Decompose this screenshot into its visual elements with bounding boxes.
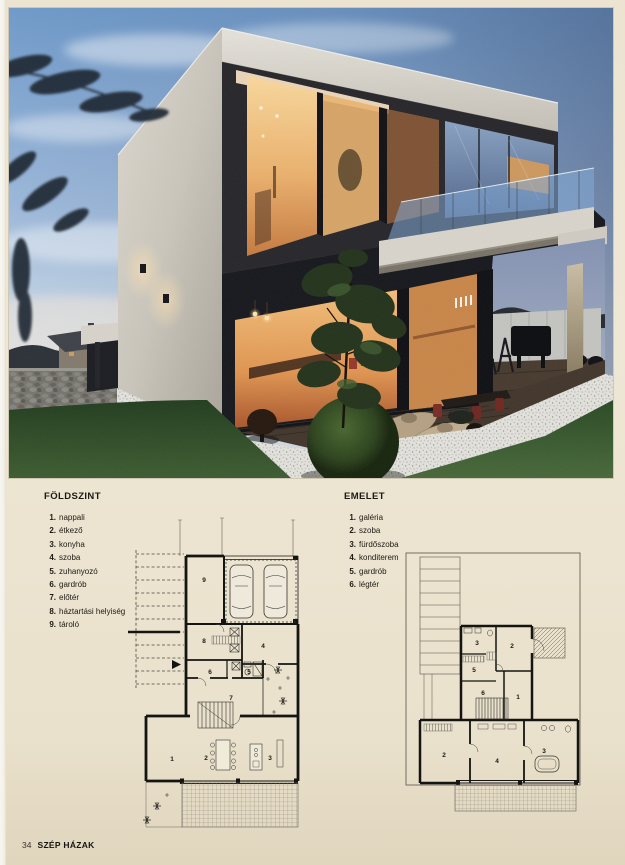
car bbox=[230, 565, 253, 618]
svg-text:6: 6 bbox=[481, 690, 485, 697]
svg-text:1: 1 bbox=[170, 756, 174, 763]
ground-floor-legend-title: FÖLDSZINT bbox=[44, 491, 125, 502]
car bbox=[264, 565, 287, 618]
svg-text:3: 3 bbox=[542, 748, 546, 755]
page-footer: 34SZÉP HÁZAK bbox=[22, 840, 95, 850]
roof-outline bbox=[406, 553, 580, 785]
stairs-upper bbox=[476, 698, 508, 719]
legend-item: 1.galéria bbox=[344, 511, 399, 524]
svg-text:2: 2 bbox=[442, 752, 446, 759]
legend-item: 3.fürdőszoba bbox=[344, 538, 399, 551]
legend-item: 6.légtér bbox=[344, 578, 399, 591]
svg-text:8: 8 bbox=[202, 638, 206, 645]
legend-item: 2.étkező bbox=[44, 524, 125, 537]
svg-text:5: 5 bbox=[247, 669, 251, 676]
section-markers bbox=[178, 518, 295, 556]
deck-dashed-lines bbox=[136, 550, 184, 688]
svg-text:4: 4 bbox=[495, 758, 499, 765]
stairs bbox=[198, 702, 233, 728]
legend-item: 9.tároló bbox=[44, 618, 125, 631]
svg-text:5: 5 bbox=[472, 667, 476, 674]
svg-text:3: 3 bbox=[268, 755, 272, 762]
svg-text:6: 6 bbox=[208, 669, 212, 676]
svg-text:2: 2 bbox=[510, 643, 514, 650]
entrance-arrow bbox=[172, 660, 181, 669]
upper-floor-legend-title: EMELET bbox=[344, 491, 399, 502]
legend-item: 5.gardrób bbox=[344, 565, 399, 578]
magazine-title: SZÉP HÁZAK bbox=[37, 840, 94, 850]
roof-terrace bbox=[534, 628, 565, 658]
legend-item: 3.konyha bbox=[44, 538, 125, 551]
carport-plan bbox=[226, 560, 296, 622]
svg-text:9: 9 bbox=[202, 577, 206, 584]
legend-item: 1.nappali bbox=[44, 511, 125, 524]
house-photo bbox=[9, 8, 613, 478]
legend-item: 6.gardrób bbox=[44, 578, 125, 591]
legend-item: 4.szoba bbox=[44, 551, 125, 564]
page-left-edge bbox=[0, 0, 6, 865]
page-number: 34 bbox=[22, 840, 31, 850]
photo-grain bbox=[9, 8, 613, 478]
svg-text:4: 4 bbox=[261, 643, 265, 650]
svg-text:3: 3 bbox=[475, 640, 479, 647]
legend-item: 7.előtér bbox=[44, 591, 125, 604]
fixtures bbox=[198, 624, 283, 770]
upper-floor-legend: EMELET 1.galéria 2.szoba 3.fürdőszoba 4.… bbox=[344, 491, 399, 591]
house-photo-art bbox=[9, 8, 613, 478]
legend-item: 8.háztartási helyiség bbox=[44, 605, 125, 618]
legend-item: 2.szoba bbox=[344, 524, 399, 537]
upper-floor-plan: 1 2 2 3 3 4 5 6 bbox=[398, 546, 588, 818]
magazine-page: FÖLDSZINT 1.nappali 2.étkező 3.konyha 4.… bbox=[0, 0, 625, 865]
balcony-plan bbox=[455, 785, 576, 811]
svg-text:1: 1 bbox=[516, 694, 520, 701]
ground-floor-plan: 1 2 3 4 5 6 7 8 9 bbox=[128, 516, 310, 838]
svg-text:7: 7 bbox=[229, 695, 233, 702]
svg-text:2: 2 bbox=[204, 755, 208, 762]
ground-floor-legend: FÖLDSZINT 1.nappali 2.étkező 3.konyha 4.… bbox=[44, 491, 125, 632]
terrace bbox=[182, 783, 298, 827]
bathtub bbox=[535, 756, 559, 772]
roof-slats bbox=[420, 557, 460, 720]
legend-item: 4.konditerem bbox=[344, 551, 399, 564]
legend-item: 5.zuhanyozó bbox=[44, 565, 125, 578]
